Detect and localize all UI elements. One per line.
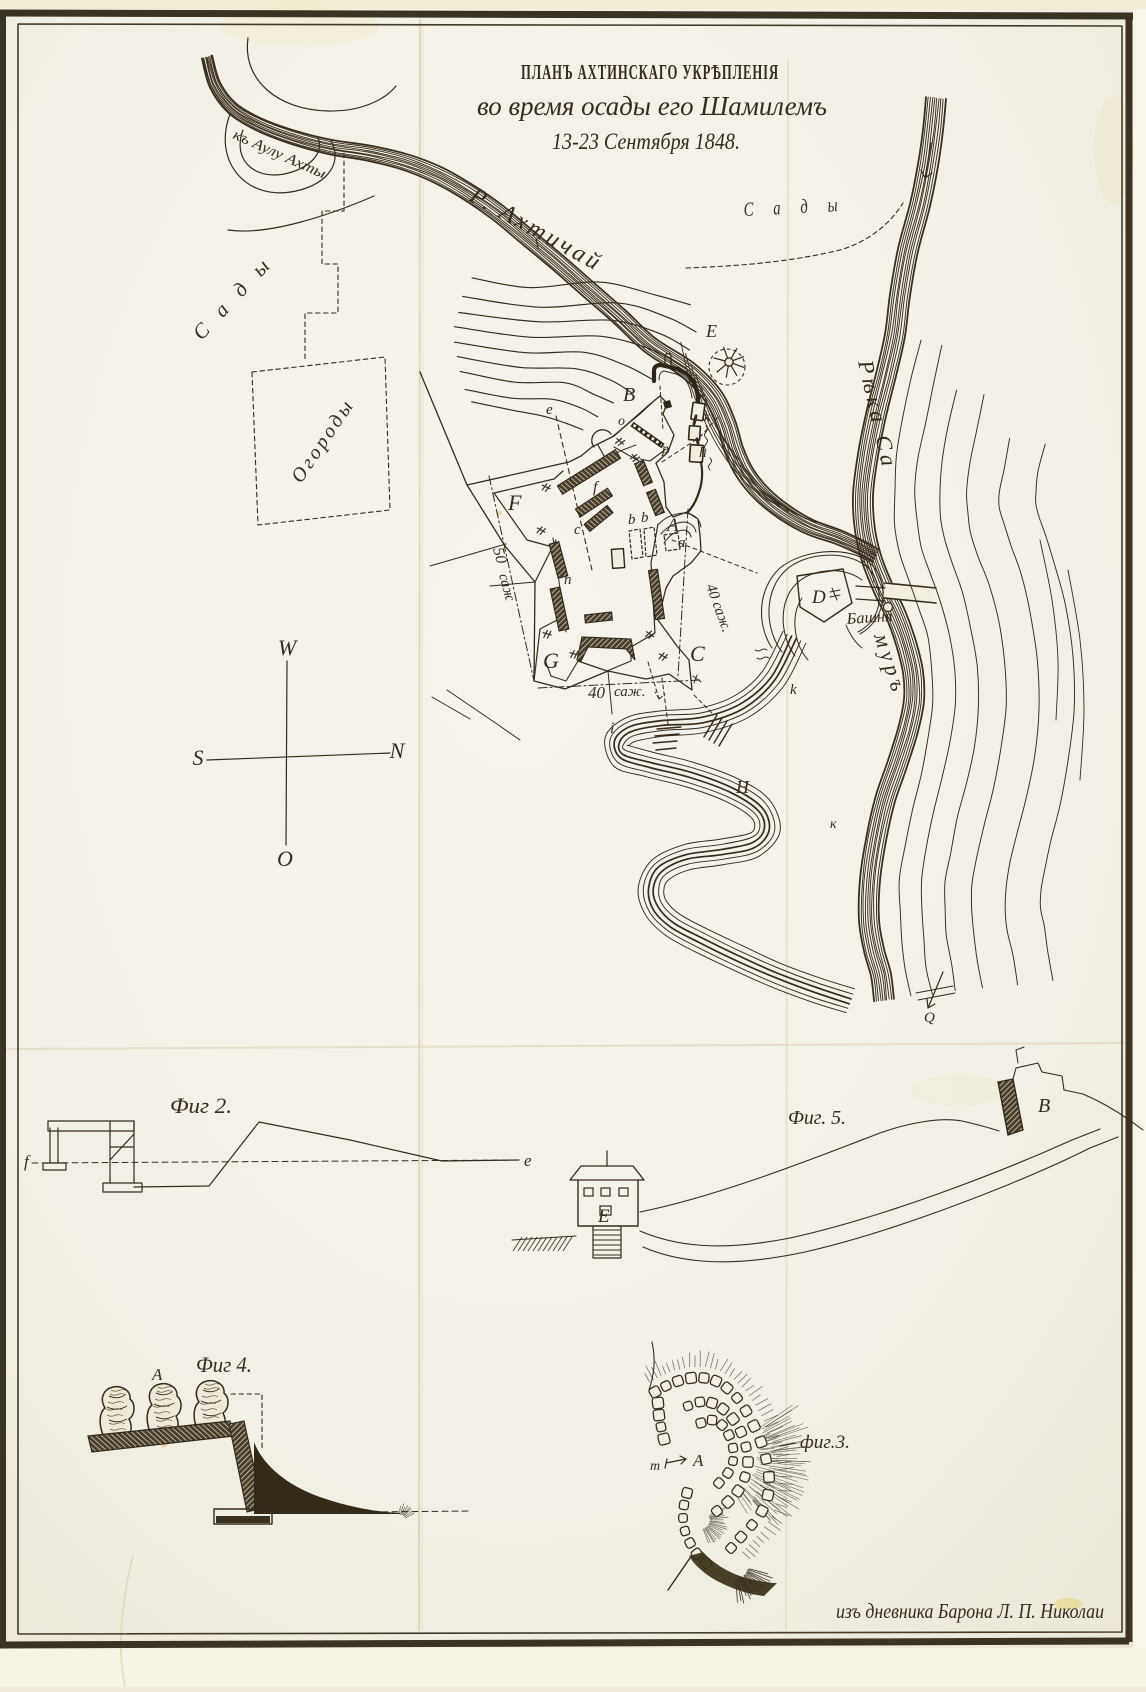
svg-text:F: F (507, 490, 522, 515)
svg-text:A: A (665, 515, 679, 536)
svg-text:D: D (811, 587, 826, 608)
svg-text:B: B (623, 384, 635, 406)
svg-text:A: A (151, 1365, 163, 1384)
svg-text:S: S (193, 745, 204, 770)
svg-text:фиг.3.: фиг.3. (800, 1432, 850, 1453)
svg-text:b: b (628, 512, 636, 528)
svg-text:k: k (704, 410, 711, 425)
svg-text:e: e (546, 402, 553, 418)
svg-text:i: i (610, 720, 614, 737)
svg-text:к: к (830, 817, 837, 832)
svg-text:m: m (650, 1459, 660, 1474)
svg-text:e: e (524, 1151, 532, 1170)
svg-text:40: 40 (588, 683, 606, 702)
svg-text:k: k (790, 682, 797, 698)
svg-text:E: E (597, 1206, 610, 1227)
svg-text:саж.: саж. (614, 684, 645, 700)
svg-text:B: B (1038, 1095, 1050, 1117)
svg-text:b: b (641, 510, 649, 526)
svg-text:O: O (277, 846, 293, 871)
svg-text:Башня: Башня (845, 608, 893, 628)
svg-text:изъ дневника Барона Л. П. Нико: изъ дневника Барона Л. П. Николаи (836, 1599, 1104, 1623)
svg-text:13-23 Сентября 1848.: 13-23 Сентября 1848. (552, 129, 740, 154)
svg-text:o: o (618, 414, 625, 429)
svg-text:W: W (278, 635, 298, 660)
svg-text:N: N (389, 738, 406, 763)
svg-text:p: p (661, 442, 669, 457)
svg-text:c: c (574, 522, 581, 538)
svg-text:Фиг 4.: Фиг 4. (196, 1352, 252, 1377)
svg-text:n: n (564, 572, 572, 588)
svg-text:во время осады его Шамилемъ: во время осады его Шамилемъ (477, 91, 827, 121)
svg-text:E: E (705, 321, 717, 341)
svg-text:Фиг 2.: Фиг 2. (170, 1093, 232, 1118)
svg-text:Фиг. 5.: Фиг. 5. (788, 1107, 846, 1129)
svg-text:H: H (735, 777, 750, 797)
svg-text:Q: Q (924, 1010, 935, 1026)
svg-text:C: C (690, 641, 705, 666)
svg-text:A: A (692, 1451, 704, 1470)
svg-text:h: h (699, 445, 707, 461)
svg-text:ПЛАНЪ АХТИНСКАГО УКРѢПЛЕНІЯ: ПЛАНЪ АХТИНСКАГО УКРѢПЛЕНІЯ (521, 60, 779, 84)
svg-text:G: G (543, 648, 559, 673)
